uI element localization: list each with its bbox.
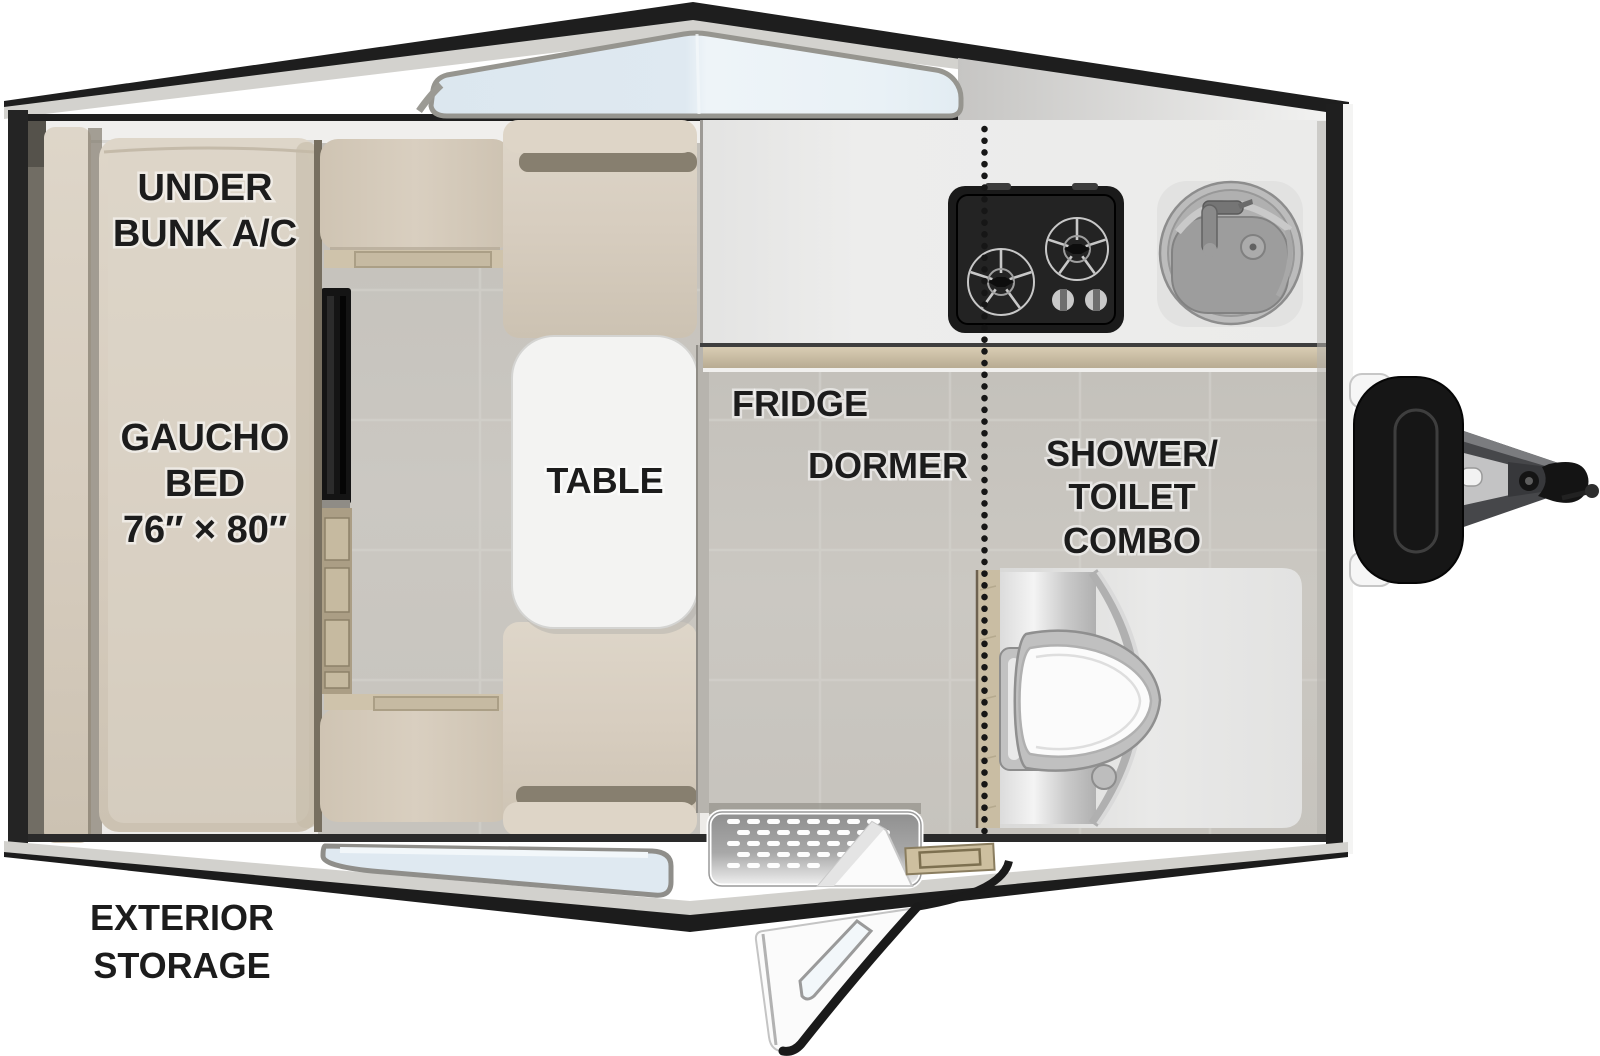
svg-text:SHOWER/: SHOWER/ [1046,433,1218,474]
svg-text:BED: BED [165,463,245,505]
svg-text:COMBO: COMBO [1063,520,1201,561]
svg-text:FRIDGE: FRIDGE [732,383,868,424]
svg-text:76″ × 80″: 76″ × 80″ [123,509,287,551]
svg-text:DORMER: DORMER [808,445,968,486]
svg-text:TABLE: TABLE [546,460,663,501]
svg-text:TOILET: TOILET [1068,476,1195,517]
svg-text:STORAGE: STORAGE [93,945,270,986]
svg-text:GAUCHO: GAUCHO [121,417,290,459]
svg-text:BUNK A/C: BUNK A/C [113,213,297,255]
svg-text:EXTERIOR: EXTERIOR [90,897,274,938]
svg-text:UNDER: UNDER [137,167,272,209]
